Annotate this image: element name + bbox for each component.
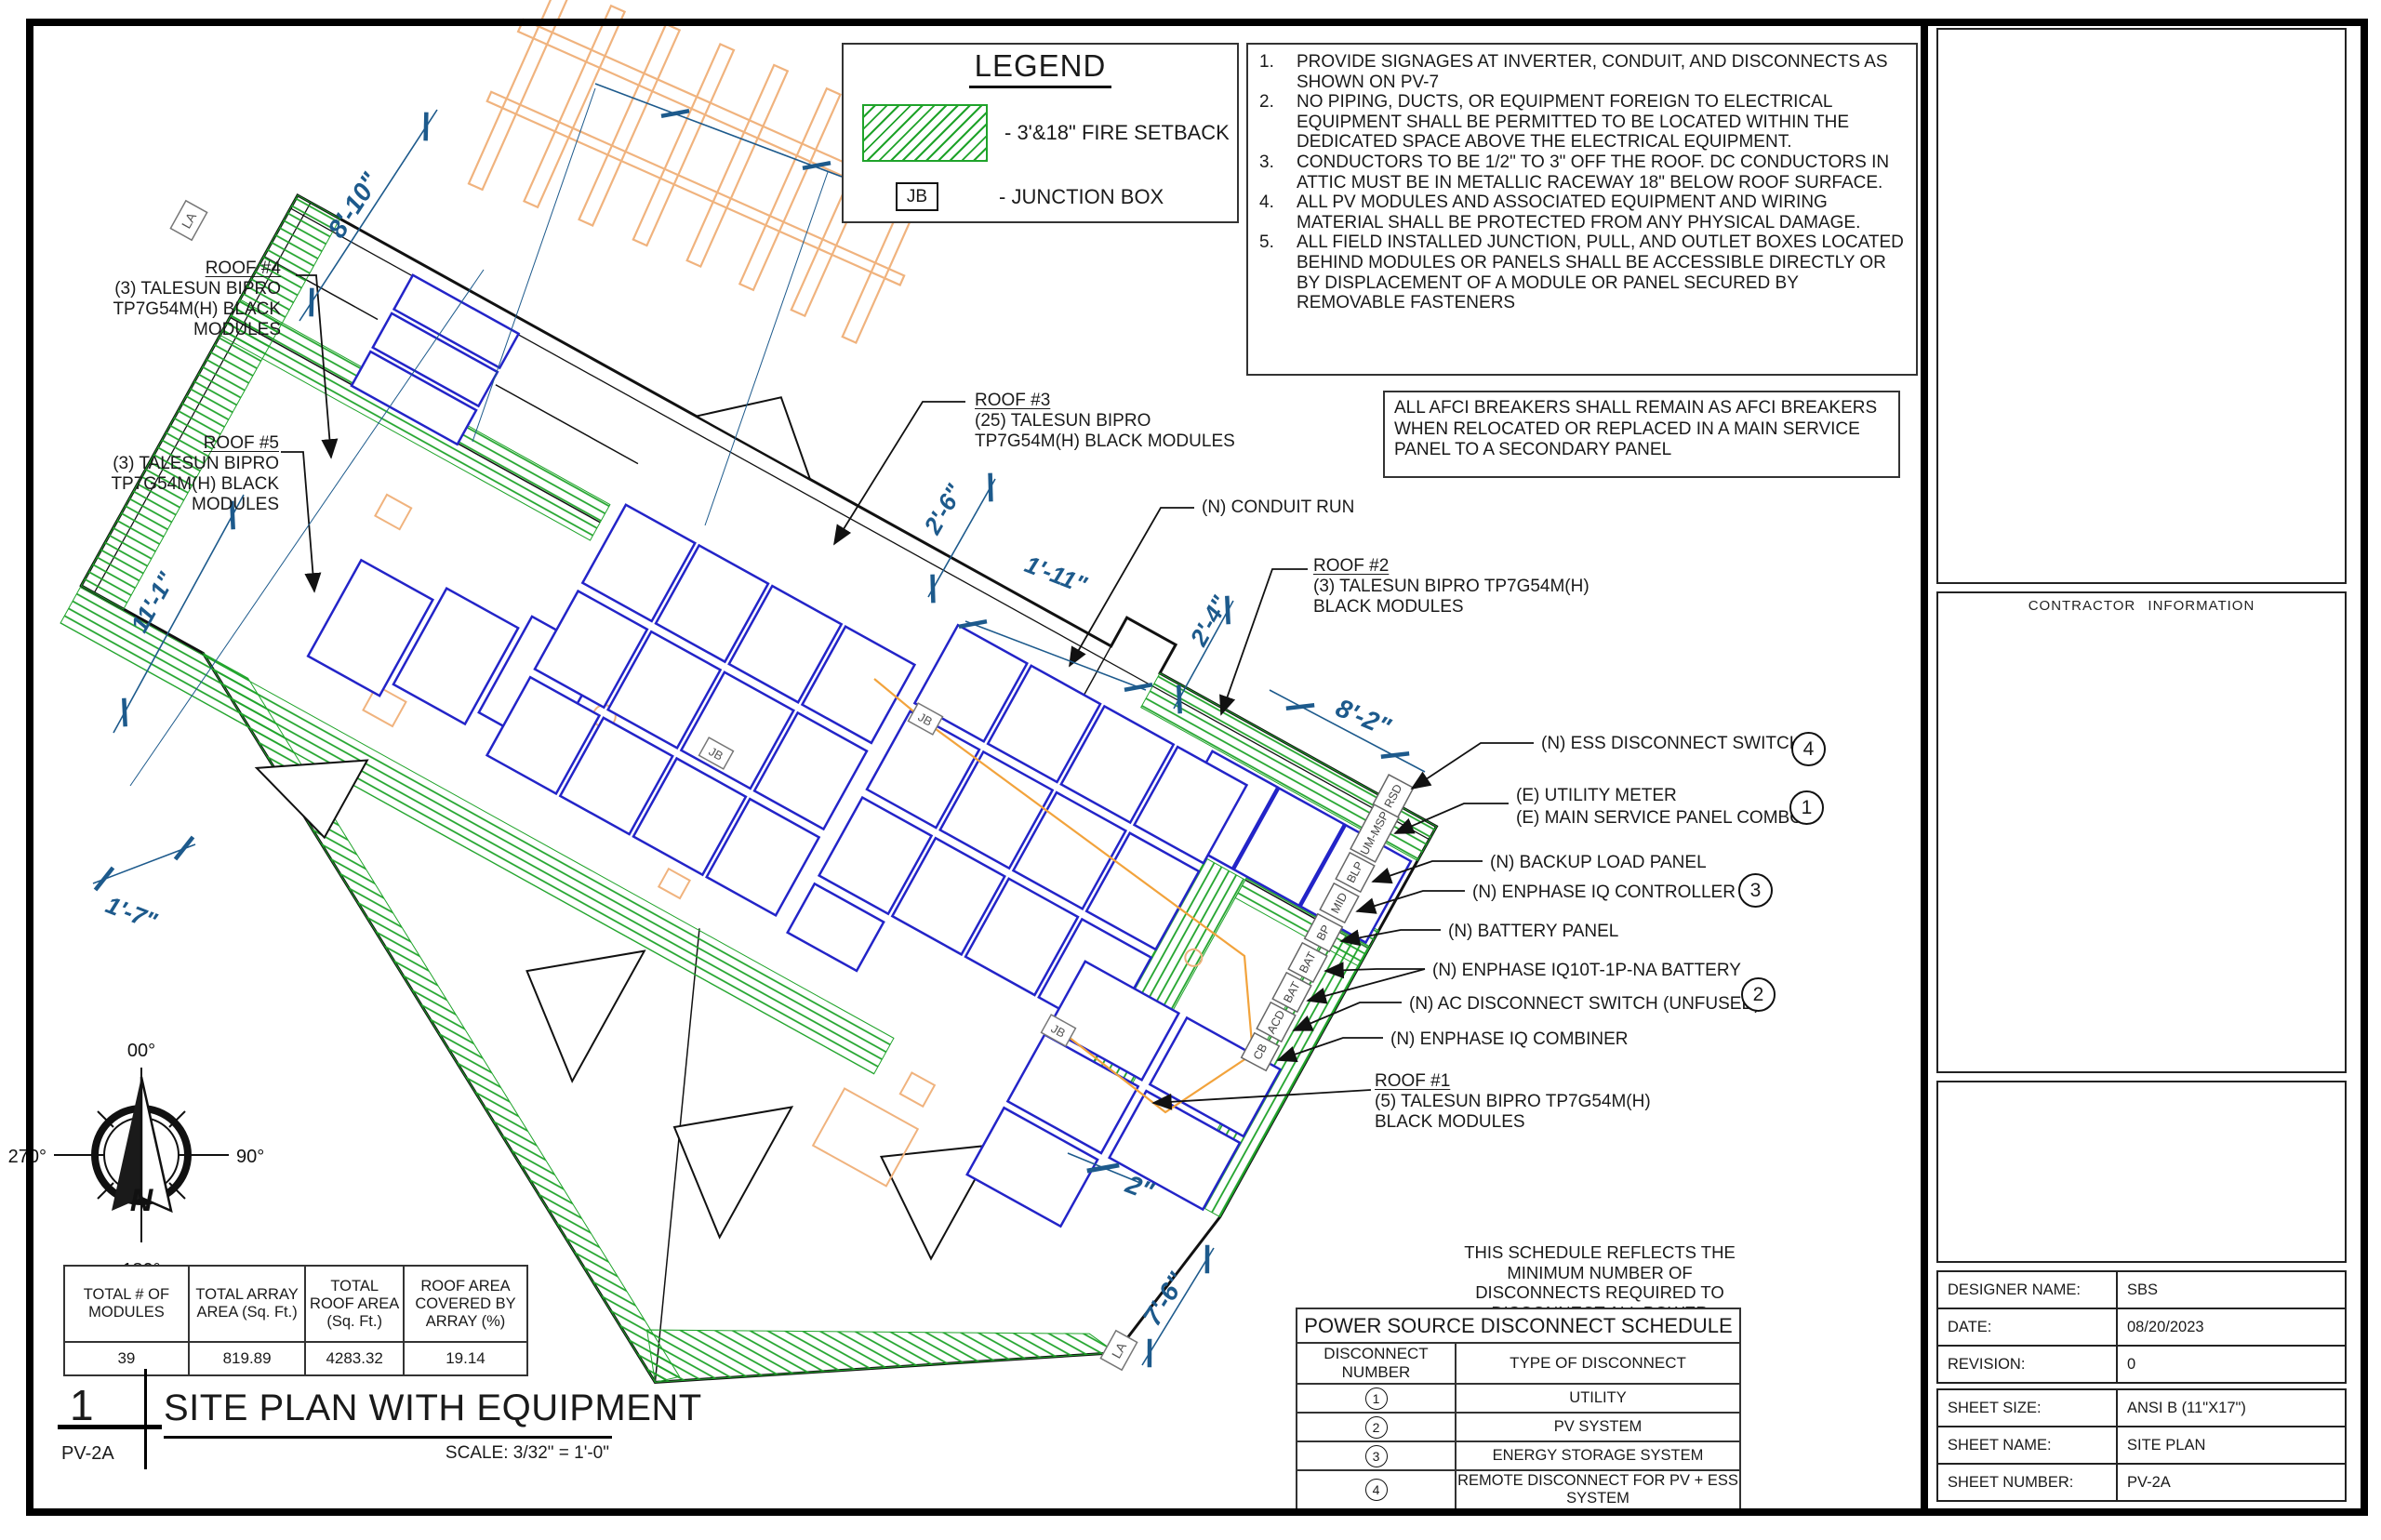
dim-2-6: 2'-6" — [918, 479, 969, 539]
roof1-label: ROOF #1 (5) TALESUN BIPRO TP7G54M(H) BLA… — [1375, 1071, 1654, 1133]
info-row: SHEET SIZE:ANSI B (11"X17") — [1937, 1389, 2346, 1427]
dim-1-7: 1'-7" — [102, 891, 162, 936]
battery-panel-label: (N) BATTERY PANEL — [1448, 922, 1618, 941]
drawing-title: SITE PLAN WITH EQUIPMENT — [164, 1387, 702, 1429]
info-row: DESIGNER NAME:SBS — [1937, 1271, 2346, 1308]
sheet-code: PV-2A — [61, 1443, 114, 1465]
compass-90: 90° — [236, 1147, 264, 1167]
dim-1-11: 1'-11" — [1021, 550, 1091, 599]
info-row: DATE:08/20/2023 — [1937, 1308, 2346, 1346]
schedule-row: 3ENERGY STORAGE SYSTEM — [1297, 1441, 1740, 1470]
ess-disconnect-label: (N) ESS DISCONNECT SWITCH — [1541, 734, 1802, 753]
summary-values-row: 39 819.89 4283.32 19.14 — [64, 1342, 527, 1375]
note-2: 2.NO PIPING, DUCTS, OR EQUIPMENT FOREIGN… — [1254, 92, 1910, 153]
note-3: 3.CONDUCTORS TO BE 1/2" TO 3" OFF THE RO… — [1254, 153, 1910, 192]
iq-battery-label: (N) ENPHASE IQ10T-1P-NA BATTERY — [1432, 961, 1741, 980]
contractor-info-box: CONTRACTOR INFORMATION — [1936, 591, 2347, 1073]
title-underline — [164, 1436, 612, 1439]
sheet-info-table: DESIGNER NAME:SBS DATE:08/20/2023 REVISI… — [1936, 1270, 2347, 1502]
ess-disconnect-number: 4 — [1791, 732, 1826, 766]
roof4-label: ROOF #4 (3) TALESUN BIPRO TP7G54M(H) BLA… — [74, 259, 281, 340]
fire-setback-label: - 3'&18" FIRE SETBACK — [1004, 121, 1230, 145]
contractor-info-header: CONTRACTOR INFORMATION — [1938, 593, 2345, 614]
junction-box-symbol: JB — [896, 182, 938, 211]
main-service-panel-label: (E) MAIN SERVICE PANEL COMBO — [1516, 808, 1803, 828]
title-column-box-mid — [1936, 1081, 2347, 1263]
compass-0: 00° — [127, 1041, 155, 1061]
dim-8-2: 8'-2" — [1332, 693, 1395, 741]
ess-number: 3 — [1738, 873, 1773, 908]
roof2-label: ROOF #2 (3) TALESUN BIPRO TP7G54M(H) BLA… — [1313, 556, 1592, 617]
detail-number: 1 — [70, 1380, 94, 1430]
note-1: 1.PROVIDE SIGNAGES AT INVERTER, CONDUIT,… — [1254, 52, 1910, 92]
compass-270: 270° — [8, 1147, 47, 1167]
compass: N 00° 90° 180° 270° — [8, 1041, 265, 1281]
iq-combiner-label: (N) ENPHASE IQ COMBINER — [1390, 1029, 1628, 1049]
pv-system-number: 2 — [1741, 977, 1776, 1012]
conduit-run-label: (N) CONDUIT RUN — [1202, 498, 1354, 517]
scale-label: SCALE: 3/32" = 1'-0" — [367, 1443, 609, 1464]
title-column-box-top — [1936, 28, 2347, 584]
fire-setback-swatch — [862, 104, 988, 162]
utility-meter-label: (E) UTILITY METER — [1516, 786, 1677, 805]
roof5-label: ROOF #5 (3) TALESUN BIPRO TP7G54M(H) BLA… — [73, 433, 279, 515]
info-row: REVISION:0 — [1937, 1346, 2346, 1383]
ac-disconnect-label: (N) AC DISCONNECT SWITCH (UNFUSED) — [1409, 994, 1761, 1014]
disconnect-schedule-table: POWER SOURCE DISCONNECT SCHEDULE DISCONN… — [1296, 1308, 1741, 1510]
info-row: SHEET NUMBER:PV-2A — [1937, 1464, 2346, 1501]
afci-note: ALL AFCI BREAKERS SHALL REMAIN AS AFCI B… — [1383, 391, 1900, 478]
general-notes: 1.PROVIDE SIGNAGES AT INVERTER, CONDUIT,… — [1246, 43, 1918, 376]
schedule-row: 4REMOTE DISCONNECT FOR PV + ESS SYSTEM — [1297, 1470, 1740, 1509]
title-divider-vertical — [144, 1369, 147, 1469]
roof3-label: ROOF #3 (25) TALESUN BIPRO TP7G54M(H) BL… — [975, 391, 1235, 452]
backup-load-panel-label: (N) BACKUP LOAD PANEL — [1490, 853, 1707, 872]
schedule-row: 1UTILITY — [1297, 1384, 1740, 1413]
legend-title: LEGEND — [969, 48, 1112, 88]
junction-box-label: - JUNCTION BOX — [999, 185, 1164, 209]
schedule-col2-header: TYPE OF DISCONNECT — [1456, 1343, 1740, 1384]
schedule-col1-header: DISCONNECT NUMBER — [1297, 1343, 1456, 1384]
utility-number: 1 — [1789, 790, 1824, 825]
info-row: SHEET NAME:SITE PLAN — [1937, 1427, 2346, 1464]
module-summary-table: TOTAL # OF MODULES TOTAL ARRAY AREA (Sq.… — [63, 1265, 528, 1376]
note-5: 5.ALL FIELD INSTALLED JUNCTION, PULL, AN… — [1254, 232, 1910, 312]
compass-n: N — [130, 1183, 154, 1218]
iq-controller-label: (N) ENPHASE IQ CONTROLLER 2 — [1472, 883, 1750, 902]
schedule-row: 2PV SYSTEM — [1297, 1413, 1740, 1441]
schedule-title: POWER SOURCE DISCONNECT SCHEDULE — [1297, 1308, 1740, 1343]
note-4: 4.ALL PV MODULES AND ASSOCIATED EQUIPMEN… — [1254, 192, 1910, 232]
legend-box: LEGEND - 3'&18" FIRE SETBACK JB - JUNCTI… — [842, 43, 1239, 223]
title-column: CONTRACTOR INFORMATION DESIGNER NAME:SBS… — [1921, 19, 2355, 1516]
sheet: JB JB JB LA LA RSD UM-MSP — [0, 0, 2381, 1540]
